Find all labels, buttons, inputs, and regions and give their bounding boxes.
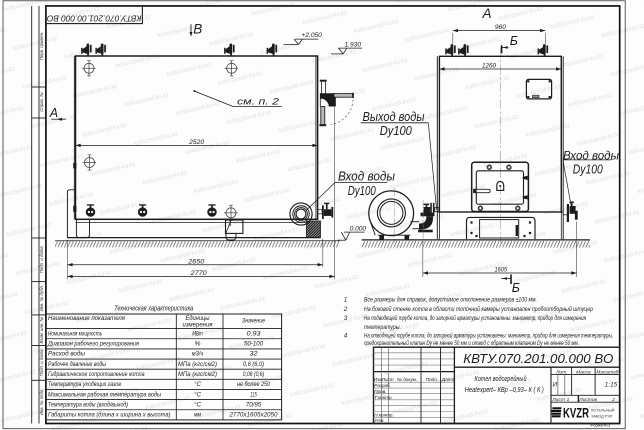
svg-text:1605: 1605 bbox=[495, 266, 508, 273]
svg-text:Расход воды: Расход воды bbox=[48, 351, 85, 358]
svg-text:2520: 2520 bbox=[188, 139, 205, 146]
svg-text:Техническая характеристика: Техническая характеристика bbox=[114, 306, 193, 313]
svg-text:0.000: 0.000 bbox=[350, 226, 367, 233]
svg-text:Максимальная рабочая температу: Максимальная рабочая температура воды bbox=[48, 391, 161, 398]
svg-text:КВТУ.070.201.00.000 ВО: КВТУ.070.201.00.000 ВО bbox=[46, 14, 141, 24]
svg-text:1: 1 bbox=[567, 397, 570, 403]
svg-text:На отводящей трубе котла, до з: На отводящей трубе котла, до запорной ар… bbox=[364, 332, 613, 340]
svg-text:°С: °С bbox=[194, 381, 201, 388]
svg-text:Справ. №: Справ. № bbox=[39, 92, 44, 112]
svg-text:960: 960 bbox=[495, 24, 507, 31]
svg-text:Подп.: Подп. bbox=[426, 377, 438, 382]
svg-text:Инв. № подл.: Инв. № подл. bbox=[39, 389, 44, 416]
svg-text:ЗАВОД РЭП: ЗАВОД РЭП bbox=[591, 414, 612, 418]
svg-text:2650: 2650 bbox=[187, 258, 205, 265]
svg-text:Наименование показателя: Наименование показателя bbox=[48, 315, 126, 322]
svg-text:Масштаб: Масштаб bbox=[596, 370, 618, 376]
svg-text:Вход воды: Вход воды bbox=[338, 169, 396, 183]
svg-text:1:15: 1:15 bbox=[605, 382, 618, 389]
svg-text:2770х1605х2050: 2770х1605х2050 bbox=[228, 412, 278, 419]
svg-text:Значение: Значение bbox=[242, 318, 265, 325]
svg-text:КВТУ.070.201.00.000 ВО: КВТУ.070.201.00.000 ВО bbox=[463, 351, 613, 366]
svg-text:Вход воды: Вход воды bbox=[563, 149, 619, 163]
svg-text:Б: Б bbox=[512, 281, 520, 295]
svg-text:2770: 2770 bbox=[189, 270, 207, 277]
svg-text:Взам. инв. №: Взам. инв. № bbox=[39, 317, 44, 344]
svg-text:Разраб.: Разраб. bbox=[374, 383, 391, 388]
svg-text:Габариты котла (длина х ширина: Габариты котла (длина х ширина х высота) bbox=[48, 412, 171, 419]
svg-text:м3/ч: м3/ч bbox=[192, 351, 204, 358]
svg-text:°С: °С bbox=[194, 401, 201, 408]
svg-text:И: И bbox=[553, 382, 558, 389]
svg-text:Лист: Лист bbox=[551, 397, 565, 403]
svg-text:Листов: Листов bbox=[578, 397, 597, 403]
svg-text:Б: Б bbox=[510, 34, 518, 48]
svg-text:мм: мм bbox=[194, 412, 202, 419]
svg-text:А: А bbox=[49, 106, 58, 120]
svg-text:Т.контр.: Т.контр. bbox=[374, 395, 393, 400]
svg-text:1: 1 bbox=[344, 297, 348, 304]
svg-text:Н.контр.: Н.контр. bbox=[374, 413, 393, 418]
svg-text:Рабочее давление воды: Рабочее давление воды bbox=[48, 361, 106, 368]
svg-text:Dy100: Dy100 bbox=[573, 162, 603, 176]
svg-text:Утв.: Утв. bbox=[374, 418, 384, 423]
svg-text:Дата: Дата bbox=[441, 377, 455, 382]
svg-text:32: 32 bbox=[250, 351, 259, 358]
svg-text:температуры.: температуры. bbox=[364, 324, 401, 331]
svg-text:70/95: 70/95 bbox=[246, 401, 262, 408]
svg-text:Лист: Лист bbox=[381, 377, 394, 382]
svg-text:Пров.: Пров. bbox=[374, 389, 386, 394]
svg-text:МВт: МВт bbox=[192, 330, 203, 337]
svg-text:Гидравлическое сопротивление к: Гидравлическое сопротивление котла bbox=[48, 371, 145, 378]
svg-text:На подводящей трубе котла, д: На подводящей трубе котла, до запорной а… bbox=[364, 314, 586, 322]
svg-text:1260: 1260 bbox=[482, 63, 496, 70]
svg-text:КОТЕЛЬНЫЙ: КОТЕЛЬНЫЙ bbox=[591, 409, 614, 413]
svg-text:измерения: измерения bbox=[183, 322, 214, 329]
svg-text:2: 2 bbox=[343, 306, 348, 313]
svg-text:А3: А3 bbox=[604, 422, 611, 427]
svg-text:В: В bbox=[193, 21, 202, 36]
svg-text:%: % bbox=[195, 341, 201, 348]
svg-text:А: А bbox=[482, 6, 492, 21]
svg-text:Инв. № дубл.: Инв. № дубл. bbox=[39, 285, 44, 311]
svg-text:Все размеры для справок, допус: Все размеры для справок, допустимое откл… bbox=[364, 296, 537, 304]
svg-text:Dy100: Dy100 bbox=[380, 124, 412, 138]
svg-text:Подп. и дата: Подп. и дата bbox=[39, 349, 44, 377]
svg-text:№ докум.: № докум. bbox=[397, 377, 417, 382]
svg-text:МПа (кгс/см2): МПа (кгс/см2) bbox=[178, 371, 217, 378]
svg-text:Перв. примен.: Перв. примен. bbox=[39, 32, 44, 61]
svg-text:Dy100: Dy100 bbox=[348, 184, 376, 198]
svg-text:На боковой стенке котла в обла: На боковой стенке котла в области топочн… bbox=[364, 305, 593, 313]
svg-text:Диапазон рабочего регулировани: Диапазон рабочего регулирования bbox=[47, 341, 139, 348]
svg-text:2: 2 bbox=[611, 397, 615, 403]
svg-text:Heatexpert– КВр –0,93– К ( К ): Heatexpert– КВр –0,93– К ( К ) bbox=[465, 385, 544, 394]
svg-text:Номинальная мощность: Номинальная мощность bbox=[48, 330, 102, 337]
svg-text:Лит.: Лит. bbox=[555, 370, 567, 376]
svg-text:50-100: 50-100 bbox=[244, 341, 264, 348]
svg-text:Подп. и дата: Подп. и дата bbox=[39, 246, 44, 274]
svg-text:0,06 (0,6): 0,06 (0,6) bbox=[243, 371, 265, 378]
svg-text:1.930: 1.930 bbox=[345, 41, 362, 48]
svg-text:+2.050: +2.050 bbox=[302, 32, 323, 39]
svg-text:3: 3 bbox=[344, 315, 348, 322]
svg-text:Котел водогрейный: Котел водогрейный bbox=[475, 374, 527, 383]
svg-text:Выход воды: Выход воды bbox=[363, 110, 426, 124]
svg-text:0,93: 0,93 bbox=[247, 330, 262, 337]
svg-text:0,6 (6,0): 0,6 (6,0) bbox=[243, 361, 264, 368]
svg-text:°С: °С bbox=[194, 391, 201, 398]
svg-text:МПа (кгс/см2): МПа (кгс/см2) bbox=[178, 361, 217, 368]
svg-text:не более 250: не более 250 bbox=[237, 381, 270, 388]
svg-text:Температура воды (вход/выход): Температура воды (вход/выход) bbox=[48, 401, 128, 408]
svg-text:KVZR: KVZR bbox=[563, 405, 589, 420]
svg-text:Температура уходящих газов: Температура уходящих газов bbox=[48, 381, 122, 388]
svg-text:4: 4 bbox=[344, 333, 348, 340]
svg-text:см. п. 2: см. п. 2 bbox=[237, 96, 279, 106]
svg-text:115: 115 bbox=[250, 391, 257, 398]
svg-text:Масса: Масса bbox=[576, 370, 591, 376]
svg-text:предохранительный клапан Dу н: предохранительный клапан Dу не менее 50 … bbox=[364, 339, 579, 347]
